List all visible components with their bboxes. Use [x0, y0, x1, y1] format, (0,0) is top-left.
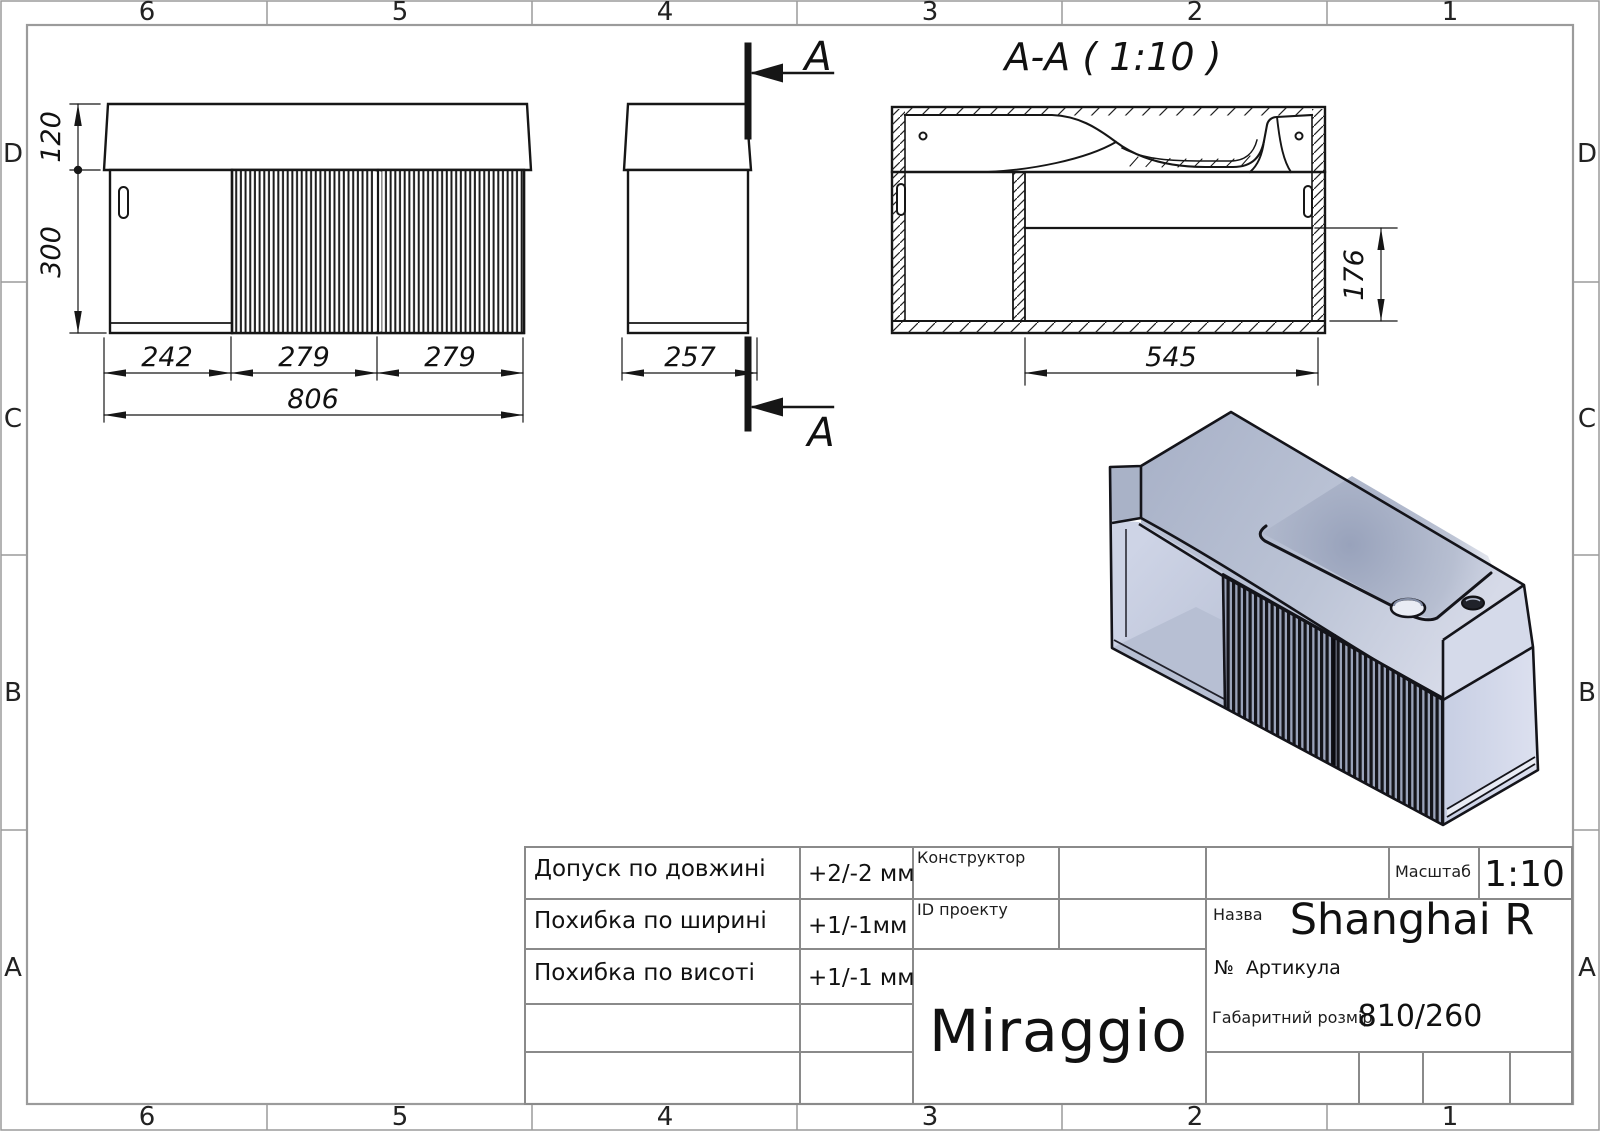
- cut-label-bottom: A: [804, 410, 834, 456]
- tb-line: [524, 846, 1573, 848]
- grid-col-label: 4: [657, 1102, 674, 1131]
- grid-col-label: 5: [392, 1102, 409, 1131]
- iso-view: [1105, 412, 1538, 825]
- grid-row-label: B: [1578, 678, 1596, 708]
- tb-line: [1509, 1051, 1511, 1104]
- dim-545: 545: [1145, 342, 1197, 373]
- brand-logo: Miraggio: [912, 1000, 1205, 1064]
- tb-line: [524, 846, 526, 1104]
- scale-value: 1:10: [1478, 855, 1571, 895]
- section-door-handle-left: [897, 184, 905, 215]
- tolerance-label: Похибка по ширині: [534, 909, 767, 934]
- name-label: Назва: [1213, 906, 1263, 924]
- dim-242: 242: [141, 342, 193, 373]
- tb-line: [799, 846, 801, 1104]
- tb-line: [524, 1103, 1573, 1105]
- front-view: 120 300 242 279 279 806: [36, 104, 531, 422]
- dim-279a: 279: [278, 342, 330, 373]
- drawing-sheet: 6 5 4 3 2 1 6 5 4 3 2 1 D C B A D C B A: [0, 0, 1600, 1131]
- name-value: Shanghai R: [1262, 897, 1562, 944]
- tb-line: [524, 1003, 912, 1005]
- tolerance-label: Похибка по висоті: [534, 961, 755, 986]
- grid-col-label: 1: [1442, 0, 1459, 27]
- tolerance-value: +1/-1мм: [808, 914, 907, 939]
- dim-279b: 279: [424, 342, 476, 373]
- grid-col-label: 3: [922, 0, 939, 27]
- grid-row-label: A: [4, 953, 22, 983]
- grid-col-label: 5: [392, 0, 409, 27]
- dim-176: 176: [1339, 249, 1370, 301]
- dim-300: 300: [36, 226, 67, 278]
- constructor-label: Конструктор: [917, 849, 1025, 867]
- grid-col-label: 6: [139, 1102, 156, 1131]
- tolerance-value: +1/-1 мм: [808, 966, 915, 991]
- cut-label-top: A: [801, 34, 831, 80]
- tolerance-value: +2/-2 мм: [808, 862, 915, 887]
- tb-line: [524, 1051, 912, 1053]
- tb-line: [1058, 846, 1060, 948]
- size-value: 810/260: [1330, 1000, 1510, 1033]
- side-view: 257 A A: [622, 34, 835, 456]
- tolerance-label: Допуск по довжині: [534, 857, 766, 882]
- dim-806: 806: [287, 384, 339, 415]
- scale-label: Масштаб: [1388, 863, 1478, 881]
- cutting-plane: A A: [748, 34, 835, 456]
- grid-col-label: 6: [139, 0, 156, 27]
- tb-line: [1205, 846, 1207, 1104]
- section-title: A-A ( 1:10 ): [1002, 35, 1222, 79]
- tb-line: [1358, 1051, 1360, 1104]
- tb-line: [1205, 1051, 1573, 1053]
- grid-col-label: 2: [1187, 1102, 1204, 1131]
- grid-col-label: 3: [922, 1102, 939, 1131]
- grid-row-label: C: [4, 404, 22, 434]
- dim-120: 120: [36, 111, 67, 163]
- section-door-handle-right: [1304, 186, 1312, 217]
- tb-line: [524, 948, 1205, 950]
- grid-col-label: 1: [1442, 1102, 1459, 1131]
- grid-row-label: B: [4, 678, 22, 708]
- tb-line: [1422, 1051, 1424, 1104]
- grid-row-label: D: [3, 139, 23, 169]
- dim-257: 257: [664, 342, 716, 373]
- grid-col-label: 2: [1187, 0, 1204, 27]
- grid-row-label: A: [1578, 953, 1596, 983]
- article-label: № Артикула: [1214, 958, 1341, 979]
- grid-row-label: C: [1578, 404, 1596, 434]
- section-view: A-A ( 1:10 ): [892, 35, 1397, 385]
- project-id-label: ID проекту: [917, 901, 1008, 919]
- grid-col-label: 4: [657, 0, 674, 27]
- grid-row-label: D: [1577, 139, 1597, 169]
- tb-line: [1571, 846, 1573, 1104]
